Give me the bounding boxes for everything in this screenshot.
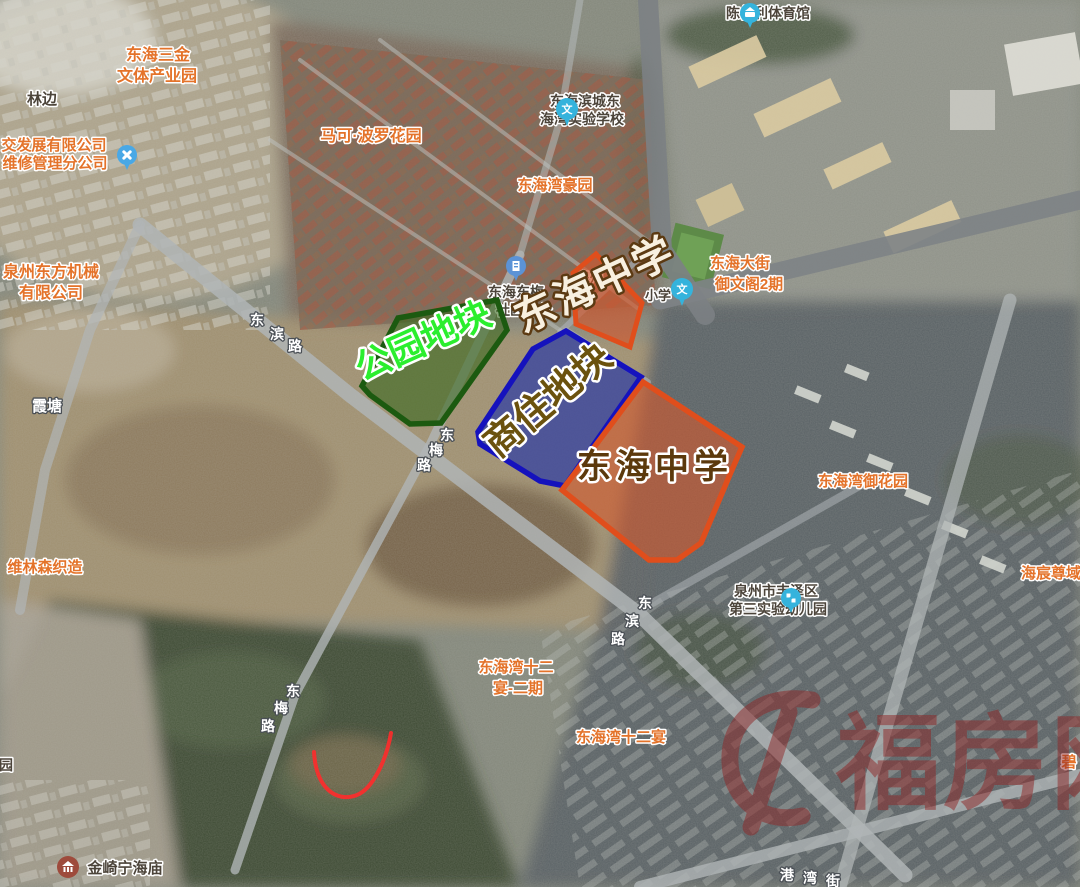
poi-label: 泉州市丰泽区 (734, 583, 818, 599)
svg-text:路: 路 (611, 631, 626, 647)
poi-label: 文体产业园 (117, 66, 197, 85)
poi-label: 东海大街 (710, 254, 770, 272)
wen-icon: 文 (562, 102, 574, 116)
poi-label: 宴-二期 (493, 679, 543, 697)
poi-icon-temple[interactable] (57, 856, 79, 878)
poi-label: 交发展有限公司 (1, 136, 106, 154)
poi-label: 第三实验幼儿园 (729, 601, 827, 617)
poi-label: 泉州东方机械 (3, 262, 99, 281)
svg-text:路: 路 (417, 457, 432, 473)
poi-label: 马可·波罗花园 (320, 126, 421, 145)
svg-text:港: 港 (780, 867, 795, 883)
map-canvas: 东海三金 文体产业园 林边 交发展有限公司 维修管理分公司 泉州东方机械 有限公… (0, 0, 1080, 887)
poi-label: 海湾实验学校 (540, 111, 625, 127)
poi-label: 东海湾豪园 (517, 176, 592, 194)
svg-text:梅: 梅 (274, 700, 288, 716)
poi-label-fragment: 园 (0, 757, 13, 773)
poi-label: 东海湾御花园 (818, 472, 908, 490)
svg-text:湾: 湾 (803, 870, 817, 886)
svg-text:路: 路 (288, 338, 303, 354)
wen-icon: 文 (677, 282, 689, 296)
poi-label: 东海三金 (126, 45, 191, 64)
poi-label: 林边 (27, 90, 58, 108)
poi-label: 金崎宁海庙 (86, 859, 162, 877)
svg-text:东: 东 (286, 683, 300, 699)
parcel-label-school-lower: 东海中学 (577, 447, 733, 486)
poi-label: 维林森织造 (7, 558, 82, 576)
poi-label: 陈伟利体育馆 (726, 5, 810, 21)
poi-label: 御文阁2期 (714, 275, 783, 293)
svg-text:梅: 梅 (429, 442, 443, 458)
svg-text:东: 东 (638, 595, 652, 611)
poi-label-fragment: 小学 (645, 288, 671, 303)
svg-text:滨: 滨 (625, 613, 639, 629)
document-icon (513, 261, 520, 271)
svg-text:东: 东 (250, 312, 264, 328)
poi-label: 东海湾十二宴 (576, 728, 666, 746)
poi-label: 东海湾十二 (478, 658, 553, 676)
svg-text:街: 街 (825, 873, 840, 887)
watermark-text: 福房网 (835, 706, 1080, 823)
poi-label: 海宸尊域 (1021, 564, 1080, 582)
poi-label: 霞塘 (32, 397, 62, 415)
poi-label: 维修管理分公司 (2, 154, 107, 172)
svg-text:滨: 滨 (270, 326, 284, 342)
svg-text:路: 路 (261, 718, 276, 734)
satellite-map-view[interactable]: 东海三金 文体产业园 林边 交发展有限公司 维修管理分公司 泉州东方机械 有限公… (0, 0, 1080, 887)
svg-text:东: 东 (440, 427, 454, 443)
poi-label: 有限公司 (19, 283, 83, 302)
